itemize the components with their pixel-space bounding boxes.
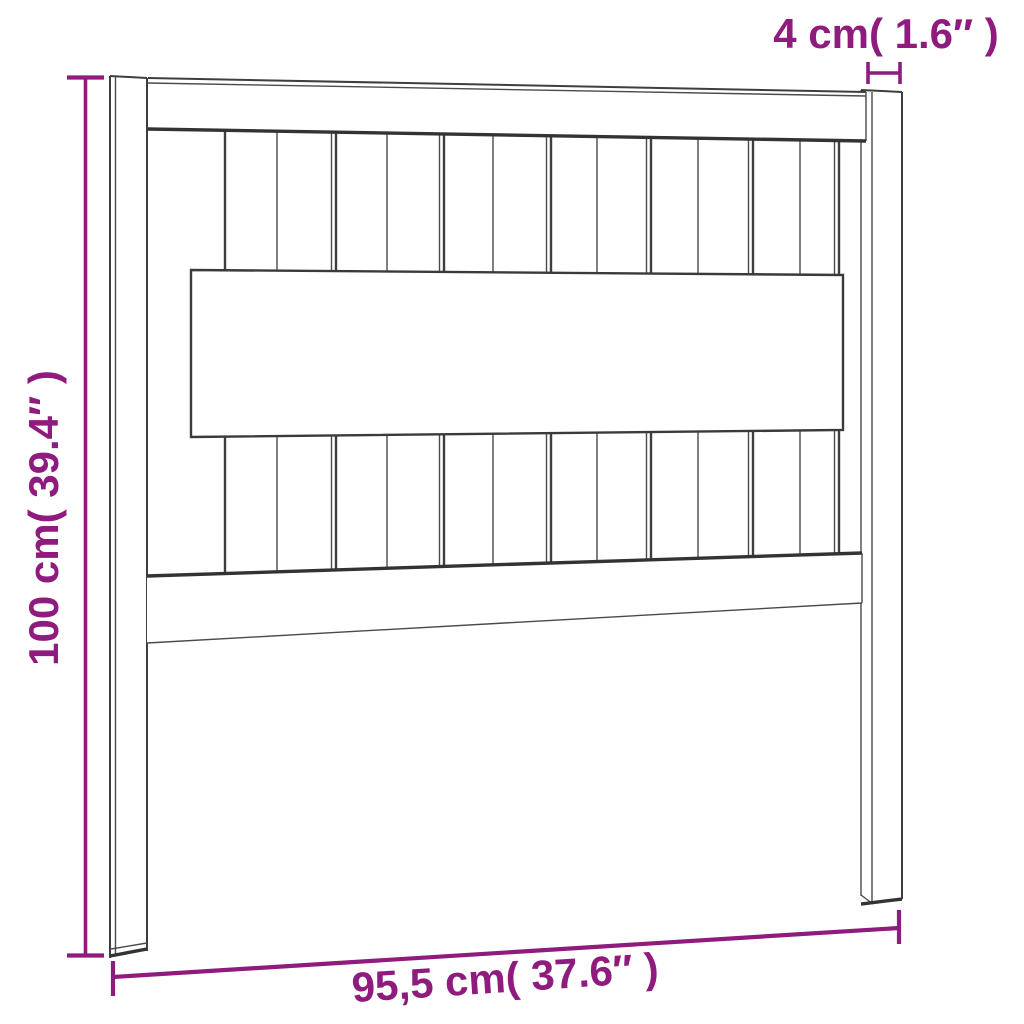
post-width-dimension-label: 4 cm( 1.6″ ) [773,10,999,57]
right-post [861,90,902,905]
headboard-dimension-diagram: 100 cm( 39.4″ ) 4 cm( 1.6″ ) 95,5 cm( 37… [0,0,1024,1024]
diagram-canvas: 100 cm( 39.4″ ) 4 cm( 1.6″ ) 95,5 cm( 37… [0,0,1024,1024]
height-dimension-label: 100 cm( 39.4″ ) [20,370,67,666]
right-post-face [861,90,902,905]
center-panel [191,270,843,437]
left-post [110,76,147,958]
